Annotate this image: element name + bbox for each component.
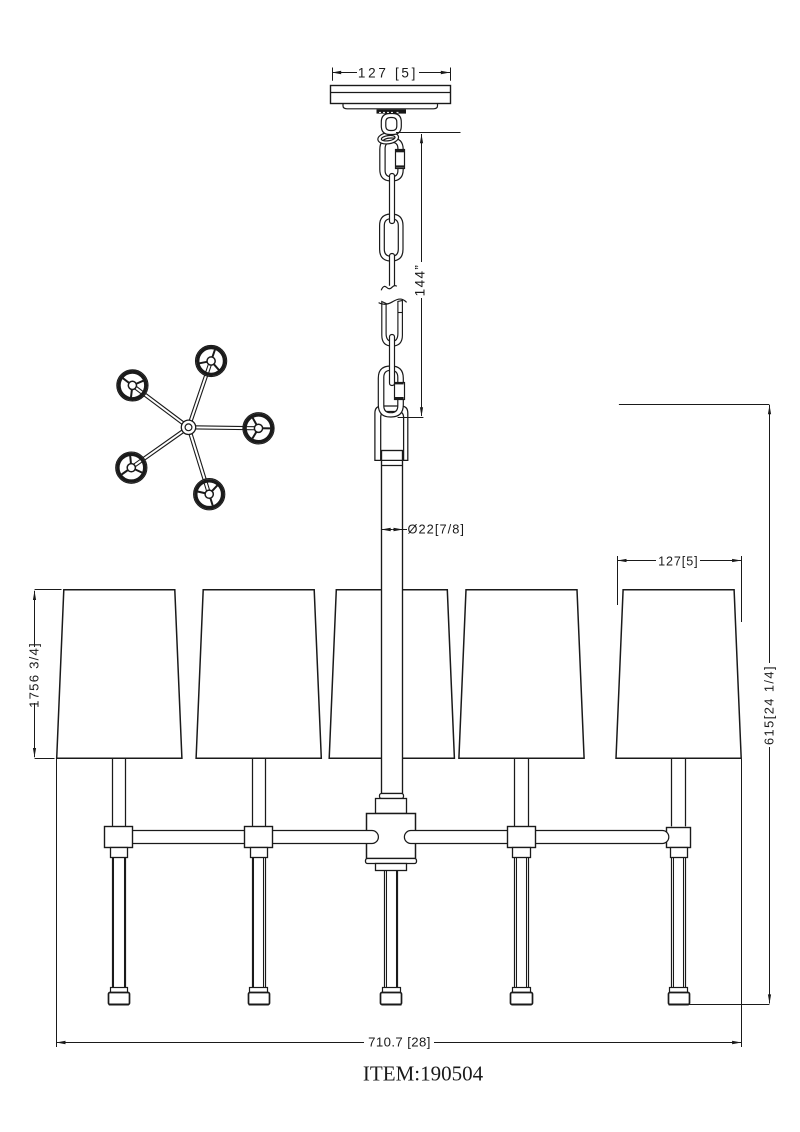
svg-text:1756 3/4]: 1756 3/4]: [27, 642, 42, 708]
svg-text:127 [5]: 127 [5]: [358, 66, 418, 81]
svg-text:Ø22[7/8]: Ø22[7/8]: [408, 522, 466, 537]
svg-text:ITEM:190504: ITEM:190504: [363, 1062, 484, 1086]
svg-text:710.7 [28]: 710.7 [28]: [368, 1035, 431, 1050]
svg-text:615[24 1/4]: 615[24 1/4]: [761, 665, 776, 745]
svg-text:127[5]: 127[5]: [658, 554, 698, 568]
svg-text:144”: 144”: [413, 264, 428, 297]
